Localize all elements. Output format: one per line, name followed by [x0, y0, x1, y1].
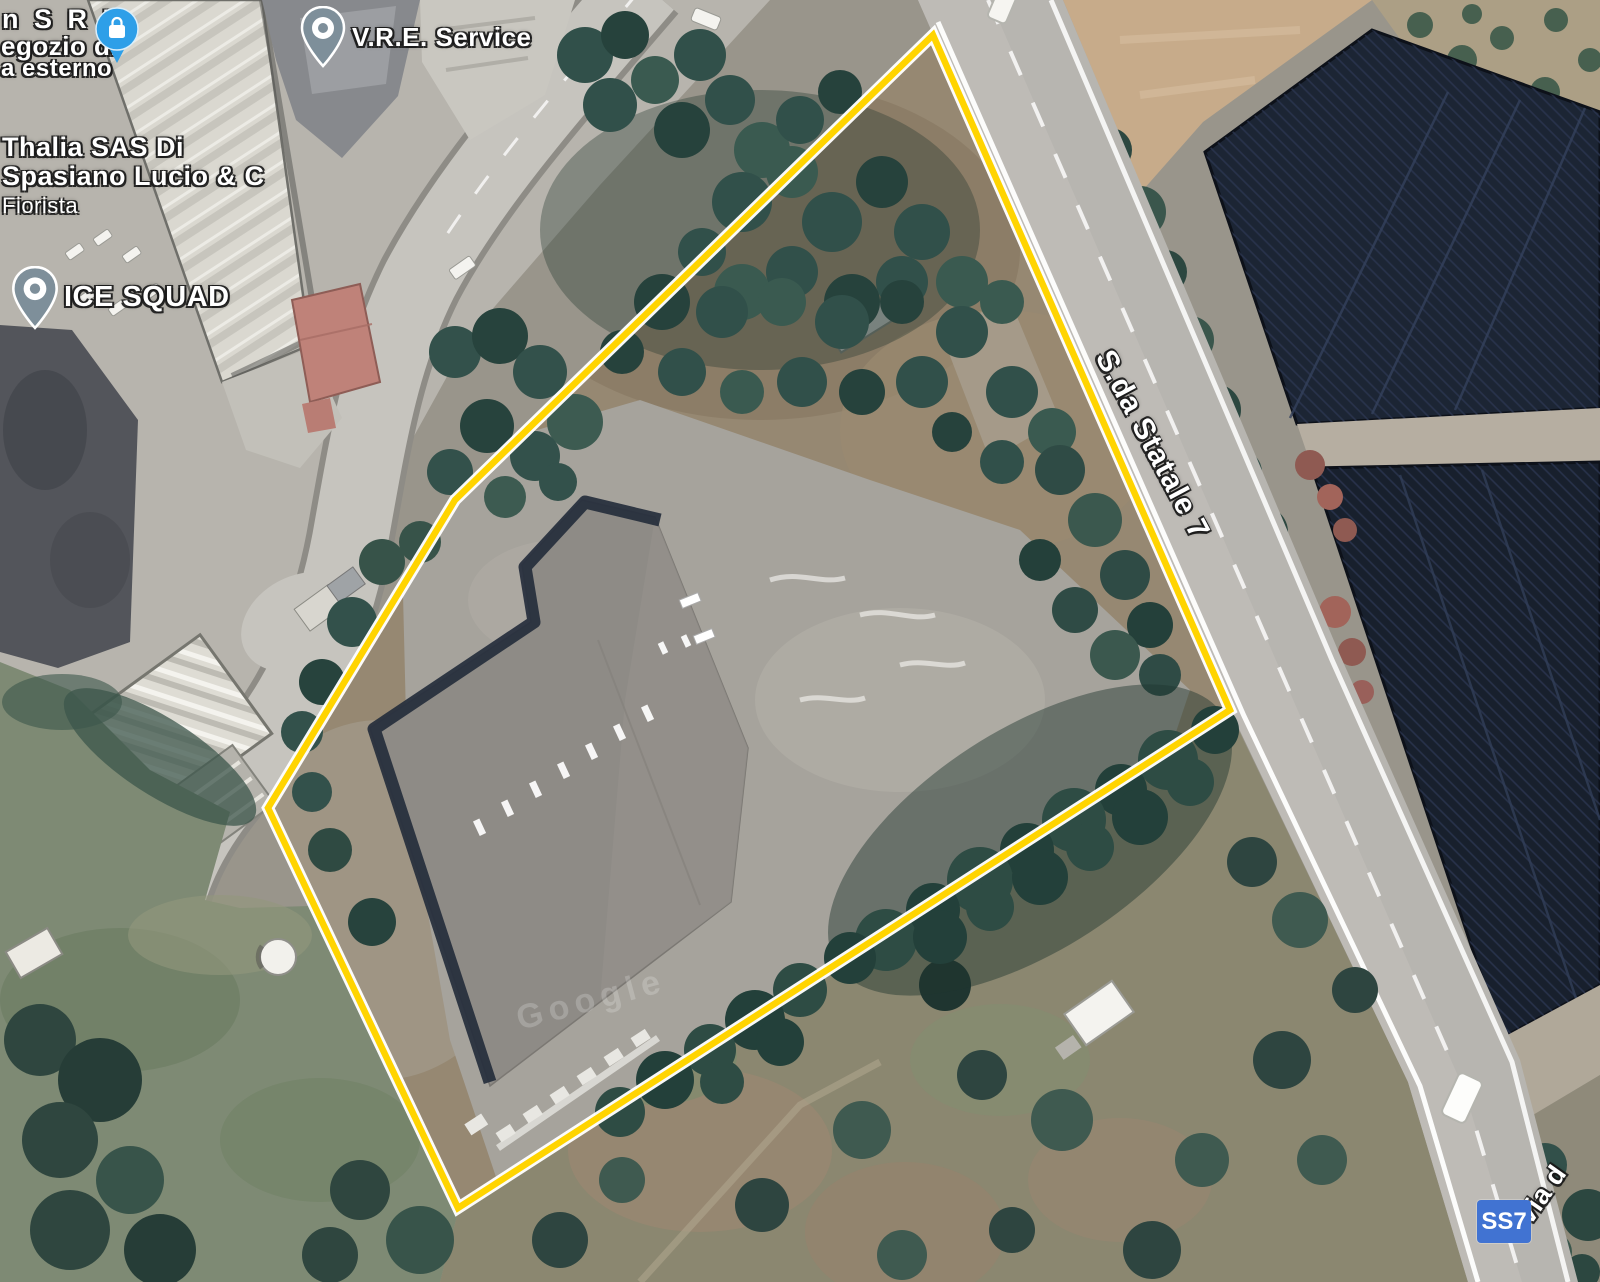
- poi-label-thalia-line3: Fiorista: [2, 193, 78, 219]
- satellite-imagery-layer: Google: [0, 0, 1600, 1282]
- poi-label-thalia-line2[interactable]: Spasiano Lucio & C: [2, 161, 265, 192]
- route-shield-ss7: SS7: [1477, 1200, 1531, 1243]
- poi-label-thalia-line1[interactable]: Thalia SAS Di: [2, 132, 184, 163]
- satellite-map-canvas[interactable]: Google n S R L egozio di a esterno V.R.E…: [0, 0, 1600, 1282]
- poi-label-ice-squad[interactable]: ICE SQUAD: [64, 281, 230, 314]
- water-tank: [260, 939, 296, 975]
- poi-label-vre-service[interactable]: V.R.E. Service: [352, 22, 532, 53]
